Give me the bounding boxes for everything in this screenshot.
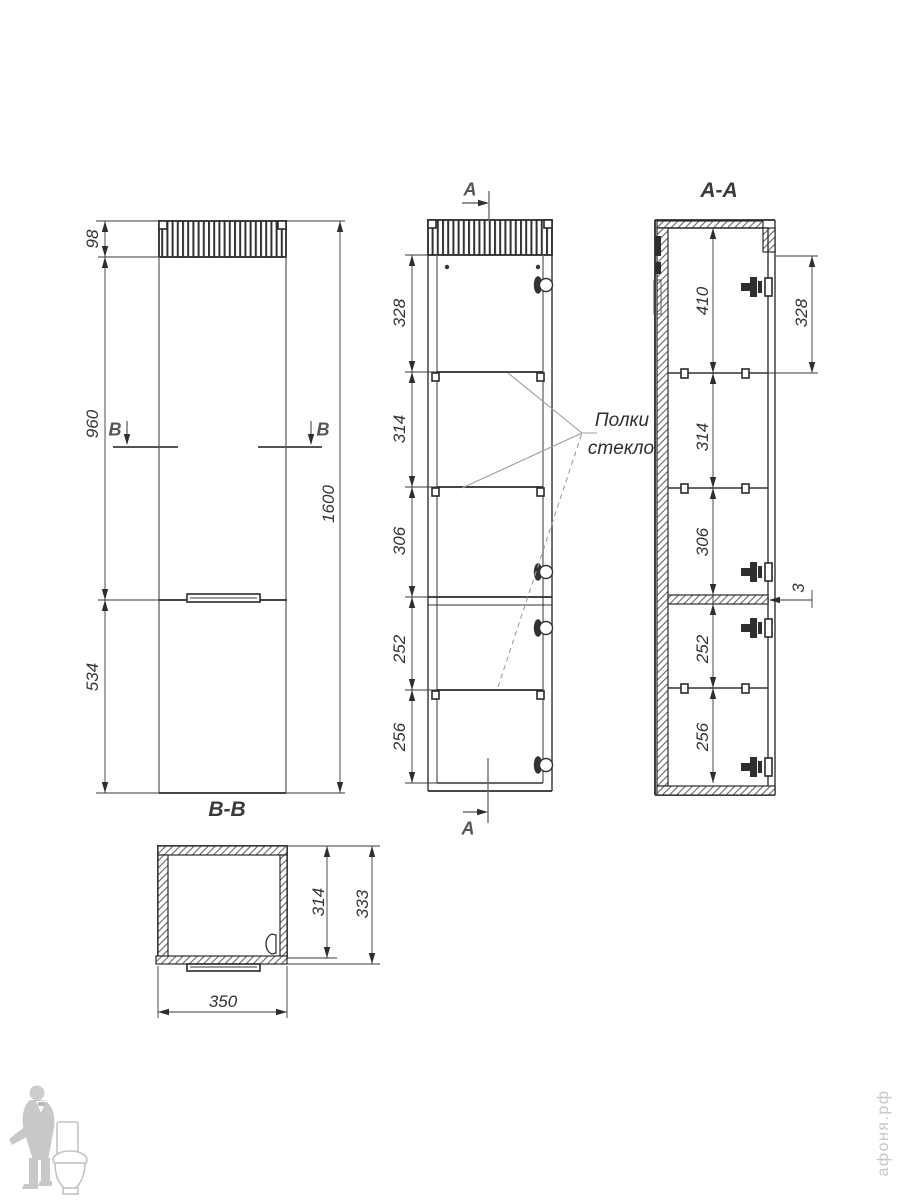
- dim-front-upper: 960: [83, 410, 103, 438]
- dim-aa-256: 256: [693, 723, 713, 751]
- cabinet-drawing: [0, 0, 900, 1200]
- section-marker-a-top: A: [464, 180, 477, 201]
- section-a-marks: [462, 191, 489, 823]
- view-title-aa: A-A: [700, 179, 737, 203]
- dim-plan-inner-depth: 314: [309, 888, 329, 916]
- section-marker-a-bottom: A: [462, 819, 475, 840]
- dim-plan-width: 350: [209, 992, 237, 1012]
- shelves-note-line2: стекло: [588, 438, 654, 460]
- dim-aa-306: 306: [693, 528, 713, 556]
- glass-shelves-section: [668, 369, 768, 693]
- section-b-marks: [113, 421, 322, 447]
- dim-aa-314: 314: [693, 423, 713, 451]
- front-view: [96, 221, 345, 793]
- shelf-pin: [445, 265, 449, 269]
- dim-side-306: 306: [390, 527, 410, 555]
- section-marker-b-left: B: [109, 420, 122, 441]
- plan-view: [156, 846, 380, 1018]
- dim-side-328: 328: [390, 299, 410, 327]
- dim-aa-410: 410: [693, 287, 713, 315]
- hinge-icon-plan: [266, 934, 276, 954]
- back-wall-section: [657, 228, 668, 786]
- shelf-leader-lines: [462, 373, 597, 687]
- right-wall-plan: [280, 855, 287, 958]
- top-panel-plan: [158, 846, 287, 855]
- dim-front-lower: 534: [83, 663, 103, 691]
- dim-front-total: 1600: [319, 485, 339, 523]
- bottom-panel-section: [657, 786, 775, 795]
- left-wall-plan: [158, 855, 168, 958]
- shelves-note-line1: Полки: [595, 410, 649, 432]
- dim-aa-gap-3: 3: [789, 583, 809, 592]
- top-decor-strip: [159, 221, 286, 257]
- view-title-bb: B-B: [208, 798, 245, 822]
- mid-divider-section: [668, 595, 768, 604]
- door-plan: [156, 956, 287, 964]
- plumber-logo-watermark: [9, 1086, 87, 1195]
- dim-aa-door-328: 328: [792, 299, 812, 327]
- shelf-pin: [536, 265, 540, 269]
- top-decor-strip: [428, 220, 552, 255]
- dim-side-252: 252: [390, 635, 410, 663]
- site-watermark: афоня.рф: [875, 1090, 893, 1177]
- technical-drawing-page: 98 960 534 1600 B B B-B A A 328 314 306 …: [0, 0, 900, 1200]
- dim-aa-252: 252: [693, 635, 713, 663]
- dim-plan-depth: 333: [353, 890, 373, 918]
- section-marker-b-right: B: [317, 420, 330, 441]
- dim-side-314: 314: [390, 415, 410, 443]
- door-top-section: [763, 228, 775, 252]
- glass-shelves: [432, 372, 544, 699]
- side-view: [405, 191, 597, 823]
- dim-side-256: 256: [390, 723, 410, 751]
- dim-front-strip: 98: [83, 230, 103, 249]
- door-handle-plan: [187, 964, 260, 971]
